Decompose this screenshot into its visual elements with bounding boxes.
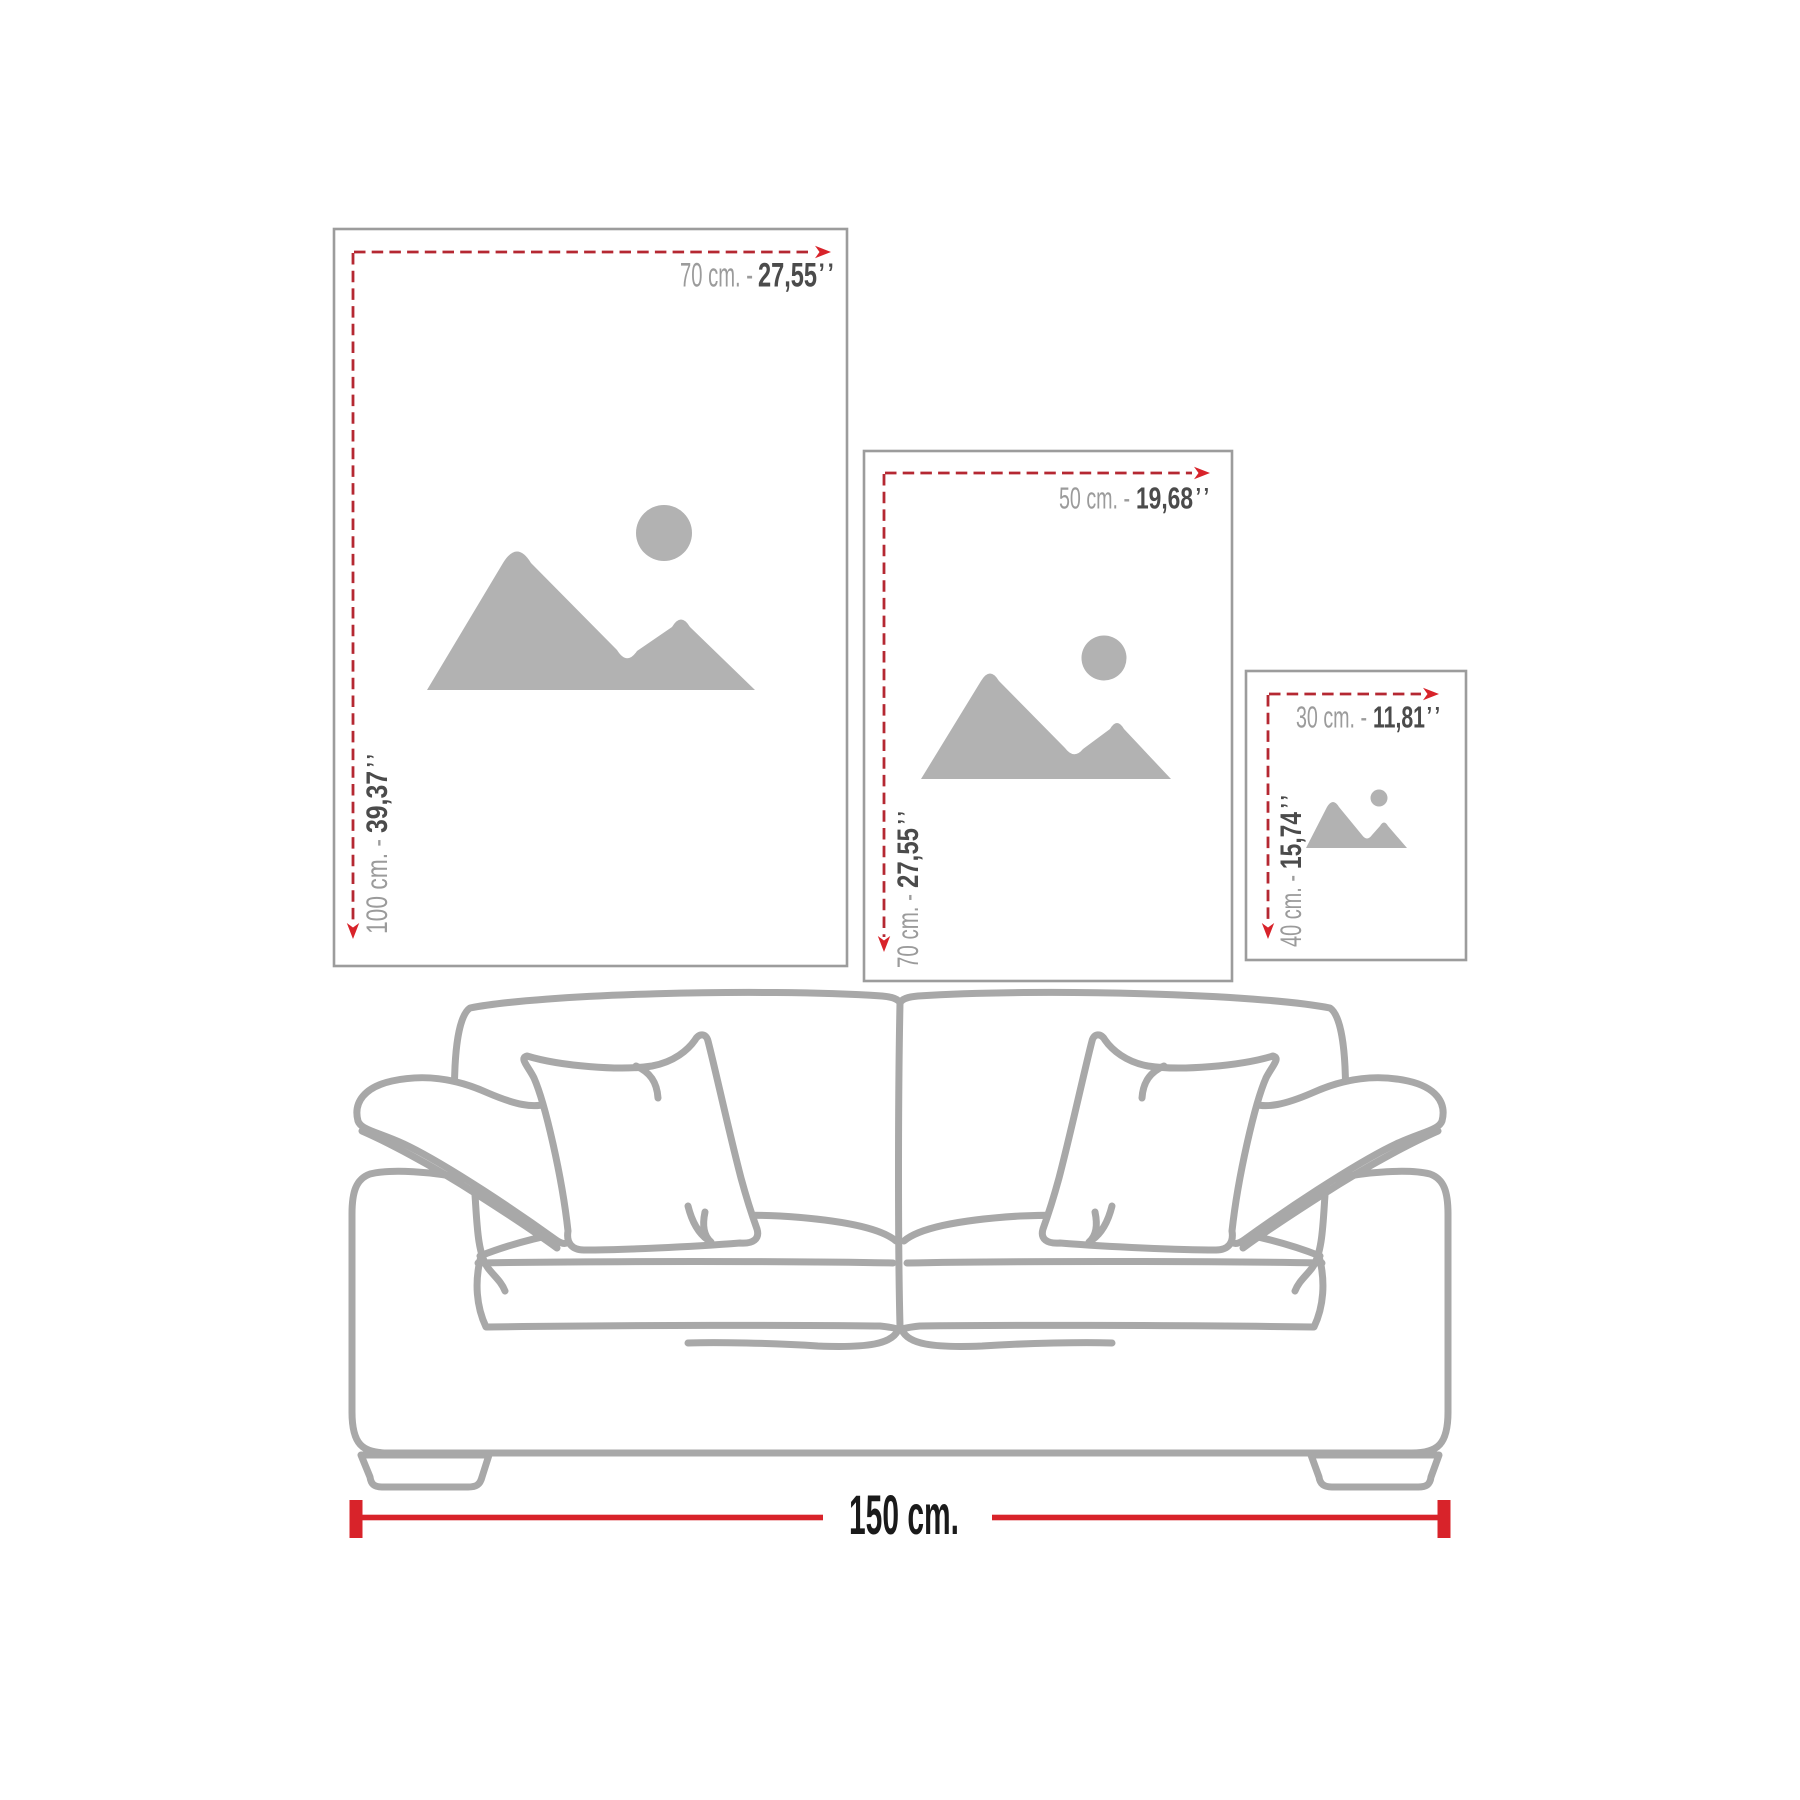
svg-text:’: ’ — [362, 762, 394, 768]
svg-text:’: ’ — [1276, 803, 1308, 809]
svg-text:’: ’ — [1276, 795, 1308, 801]
svg-text:’: ’ — [827, 257, 834, 294]
svg-text:’: ’ — [893, 819, 925, 825]
svg-text:30 cm. -: 30 cm. - — [1296, 700, 1367, 735]
svg-text:50 cm. -: 50 cm. - — [1059, 481, 1130, 516]
svg-text:’: ’ — [893, 811, 925, 817]
svg-text:’: ’ — [1434, 702, 1441, 735]
svg-text:40 cm. -: 40 cm. - — [1275, 875, 1308, 947]
svg-text:’: ’ — [362, 754, 394, 760]
svg-text:’: ’ — [1195, 483, 1202, 516]
svg-text:19,68: 19,68 — [1136, 481, 1193, 516]
svg-text:39,37: 39,37 — [361, 771, 394, 833]
svg-text:27,55: 27,55 — [892, 828, 925, 888]
svg-text:11,81: 11,81 — [1373, 700, 1425, 735]
svg-text:15,74: 15,74 — [1275, 812, 1308, 869]
svg-text:27,55: 27,55 — [758, 257, 817, 295]
svg-text:’: ’ — [1426, 702, 1433, 735]
svg-text:70 cm. -: 70 cm. - — [680, 257, 753, 295]
svg-text:100 cm. -: 100 cm. - — [361, 839, 394, 934]
svg-text:70 cm. -: 70 cm. - — [892, 894, 925, 968]
svg-text:’: ’ — [1203, 483, 1210, 516]
svg-text:150 cm.: 150 cm. — [849, 1483, 959, 1546]
svg-text:’: ’ — [818, 257, 825, 294]
